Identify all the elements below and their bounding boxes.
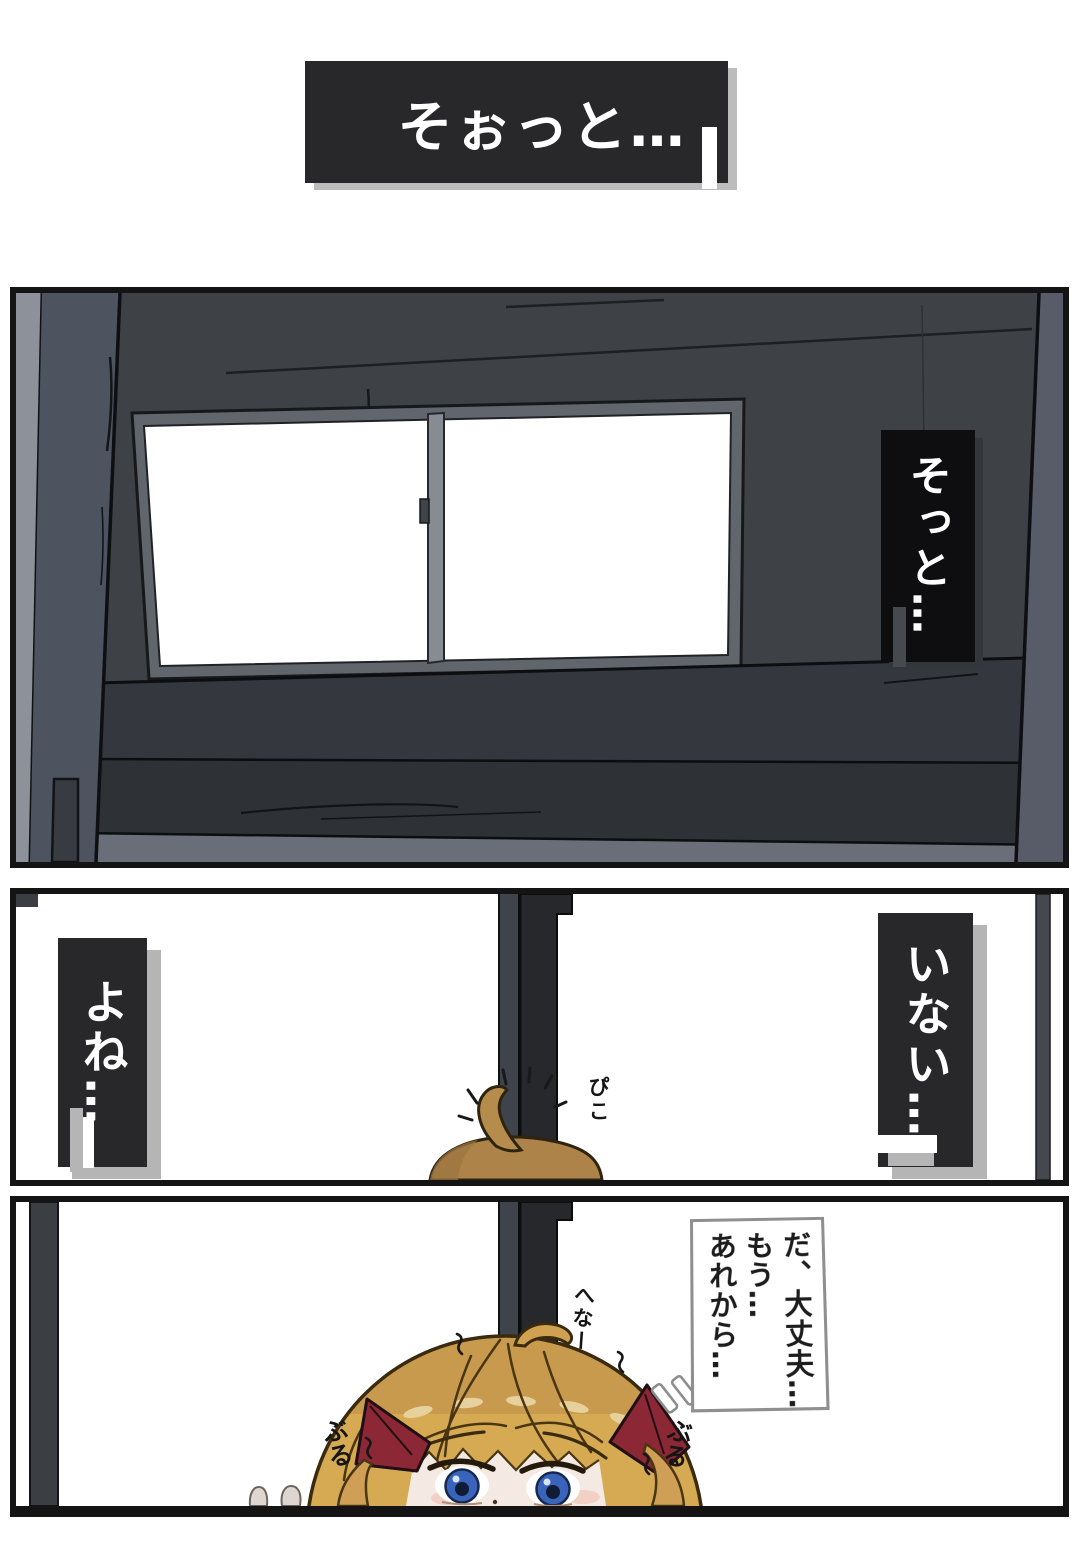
inai-caption-text: いない…	[893, 940, 959, 1140]
inai-caption-notch	[878, 1135, 937, 1153]
right-eye-pupil	[546, 1485, 560, 1499]
left-corner-nub	[16, 894, 38, 907]
fingertips	[250, 1486, 301, 1506]
window-latch	[420, 499, 429, 523]
right-eye-highlight	[544, 1479, 551, 1486]
inai-caption-notch-shadow	[888, 1153, 934, 1166]
mole	[493, 1500, 497, 1504]
sfx-hena: へなー	[565, 1283, 600, 1354]
speech-bubble: だ、大丈夫… もう… あれから…	[690, 1217, 830, 1413]
right-door-edge	[1036, 894, 1050, 1180]
sotto-caption-text: そっと…	[898, 454, 959, 638]
top-caption-notch	[702, 127, 717, 189]
left-eye-pupil	[455, 1482, 469, 1496]
window-mullion	[428, 413, 444, 663]
bubble-line: あれから…	[702, 1231, 741, 1398]
left-slat	[52, 779, 78, 862]
sill-band-mid	[74, 759, 1063, 845]
inai-caption-box: いない…	[878, 913, 973, 1167]
yone-caption-text: よね…	[70, 978, 136, 1128]
speech-bubble-text: だ、大丈夫… もう… あれから…	[698, 1220, 822, 1409]
manga-page: そっと… そぉっと…	[0, 0, 1080, 1543]
yone-caption-notch	[83, 1117, 94, 1168]
top-caption-text: そぉっと…	[345, 82, 687, 162]
top-caption-box: そぉっと…	[305, 61, 728, 183]
panel-3-peeking-girl	[10, 1196, 1069, 1517]
left-door-edge	[30, 1202, 58, 1506]
sotto-caption-notch	[893, 607, 906, 667]
yone-caption-notch-shadow	[70, 1108, 83, 1172]
sfx-piko: ぴこ	[583, 1076, 613, 1124]
panel-3-art	[16, 1202, 1063, 1506]
left-eye-highlight	[453, 1476, 460, 1483]
bubble-line: だ、大丈夫…	[776, 1230, 818, 1397]
bubble-line: もう…	[739, 1231, 779, 1398]
